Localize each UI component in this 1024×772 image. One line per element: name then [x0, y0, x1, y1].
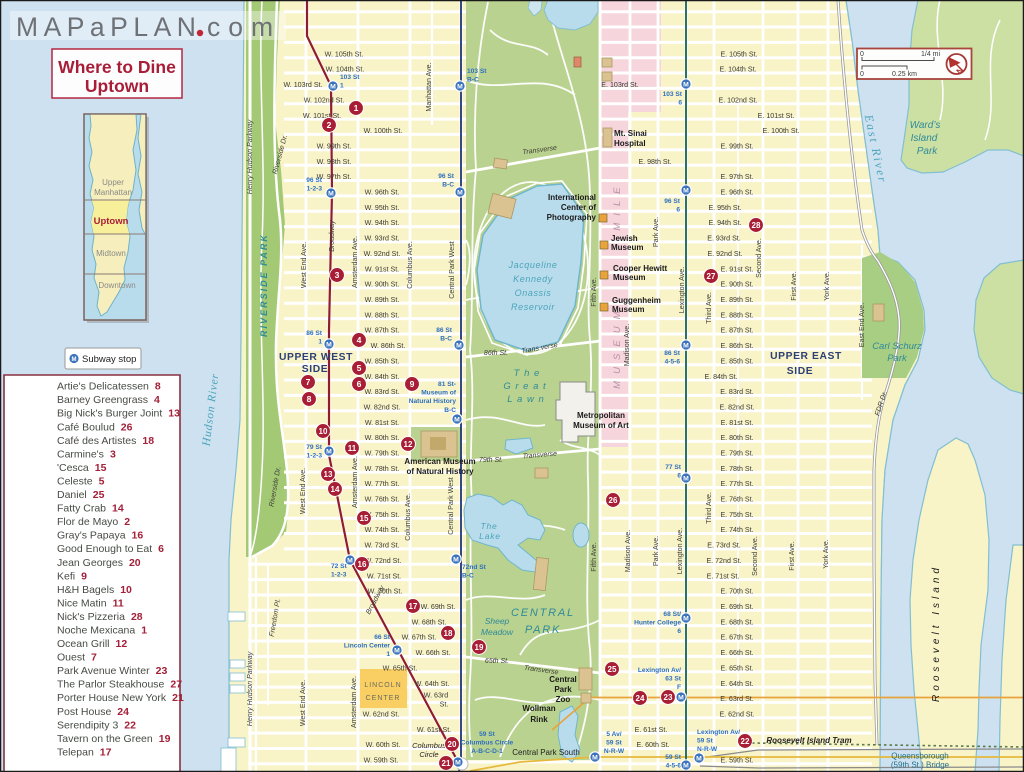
svg-text:Carl Schurz: Carl Schurz [872, 341, 922, 352]
svg-text:SIDE: SIDE [302, 364, 328, 375]
svg-text:6: 6 [678, 100, 682, 107]
svg-text:Lexington Ave.: Lexington Ave. [678, 267, 686, 313]
svg-text:Broadway: Broadway [328, 220, 336, 252]
svg-text:E. 61st St.: E. 61st St. [635, 726, 668, 734]
svg-text:W. 91st St.: W. 91st St. [365, 265, 399, 273]
svg-text:E. 84th St.: E. 84th St. [704, 373, 737, 381]
svg-text:Madison Ave.: Madison Ave. [624, 530, 632, 572]
svg-text:79th St.: 79th St. [479, 457, 503, 464]
svg-text:F: F [677, 684, 681, 691]
svg-text:103 St: 103 St [467, 68, 487, 75]
svg-text:W. 64th St.: W. 64th St. [415, 680, 450, 688]
svg-text:Uptown: Uptown [94, 216, 129, 227]
svg-text:W. 86th St.: W. 86th St. [371, 342, 406, 350]
svg-text:Kennedy: Kennedy [513, 274, 553, 284]
svg-text:M U S E U M: M U S E U M [612, 309, 623, 389]
svg-text:M: M [683, 762, 689, 769]
svg-text:SIDE: SIDE [787, 366, 813, 377]
svg-text:W. 68th St.: W. 68th St. [412, 618, 447, 626]
svg-text:W. 88th St.: W. 88th St. [365, 311, 400, 319]
svg-text:W. 82nd St.: W. 82nd St. [364, 404, 401, 412]
svg-text:Rink: Rink [530, 715, 548, 724]
svg-text:Downtown: Downtown [98, 281, 135, 290]
svg-text:Photography: Photography [547, 213, 597, 222]
svg-text:4-5-6: 4-5-6 [665, 359, 681, 366]
svg-text:Midtown: Midtown [96, 249, 126, 258]
svg-text:E. 69th St.: E. 69th St. [720, 603, 753, 611]
svg-text:W. 62nd St.: W. 62nd St. [363, 710, 400, 718]
svg-text:Porter House New York21: Porter House New York21 [57, 692, 184, 704]
svg-text:86 St: 86 St [306, 330, 323, 337]
svg-text:103 St: 103 St [340, 74, 360, 81]
svg-text:E. 88th St.: E. 88th St. [720, 311, 753, 319]
svg-text:1-2-3: 1-2-3 [307, 453, 323, 460]
svg-text:Third Ave.: Third Ave. [705, 492, 713, 524]
svg-text:M: M [326, 341, 332, 348]
svg-text:11: 11 [348, 444, 357, 453]
svg-text:66 St: 66 St [374, 634, 391, 641]
svg-text:W. 103rd St.: W. 103rd St. [283, 81, 322, 89]
svg-text:E. 92nd St.: E. 92nd St. [707, 250, 742, 258]
svg-text:86th St.: 86th St. [484, 350, 508, 357]
svg-text:E. 60th St.: E. 60th St. [636, 741, 669, 749]
svg-text:Roosevelt Island: Roosevelt Island [931, 564, 942, 702]
svg-text:Central Park West: Central Park West [448, 241, 456, 298]
svg-text:Metropolitan: Metropolitan [577, 411, 625, 420]
svg-text:International: International [548, 193, 596, 202]
svg-text:E. 95th St.: E. 95th St. [708, 204, 741, 212]
svg-text:E. 94th St.: E. 94th St. [708, 219, 741, 227]
svg-text:E. 75th St.: E. 75th St. [720, 511, 753, 519]
svg-text:8: 8 [307, 394, 312, 404]
svg-text:W. 96th St.: W. 96th St. [365, 189, 400, 197]
svg-text:W. 63rd: W. 63rd [424, 692, 448, 700]
svg-text:7: 7 [306, 377, 311, 387]
svg-text:4-5-6: 4-5-6 [666, 763, 682, 770]
svg-text:E. 70th St.: E. 70th St. [720, 588, 753, 596]
svg-text:M: M [326, 448, 332, 455]
svg-text:W. 72nd St.: W. 72nd St. [365, 557, 402, 565]
svg-text:M: M [683, 615, 689, 622]
svg-text:E. 82nd St.: E. 82nd St. [719, 404, 754, 412]
svg-text:Artie's Delicatessen8: Artie's Delicatessen8 [57, 381, 161, 393]
svg-text:Second Ave.: Second Ave. [751, 536, 759, 576]
svg-text:W. 100th St.: W. 100th St. [364, 127, 403, 135]
svg-text:B-C: B-C [444, 407, 456, 414]
svg-text:N-R-W: N-R-W [604, 748, 625, 755]
svg-text:of Natural History: of Natural History [406, 467, 474, 476]
svg-text:T h e: T h e [514, 368, 541, 379]
svg-text:Cooper Hewitt: Cooper Hewitt [613, 264, 668, 273]
svg-text:Museum: Museum [612, 305, 644, 314]
svg-text:Manhattan: Manhattan [94, 188, 132, 197]
svg-text:E. 62nd St.: E. 62nd St. [719, 710, 754, 718]
svg-text:63 St: 63 St [665, 676, 682, 683]
svg-text:MAPaPLAN: MAPaPLAN [16, 12, 201, 42]
svg-text:Guggenheim: Guggenheim [612, 296, 661, 305]
svg-text:1-2-3: 1-2-3 [307, 186, 323, 193]
svg-text:W. 71st St.: W. 71st St. [367, 572, 401, 580]
svg-text:28: 28 [752, 221, 761, 230]
svg-text:E. 93rd St.: E. 93rd St. [707, 235, 741, 243]
svg-text:Lincoln Center: Lincoln Center [344, 643, 391, 650]
svg-text:Park: Park [887, 353, 908, 364]
svg-text:West End Ave.: West End Ave. [300, 242, 308, 288]
svg-text:Hospital: Hospital [614, 139, 646, 148]
svg-text:23: 23 [664, 693, 673, 702]
svg-text:E. 64th St.: E. 64th St. [720, 680, 753, 688]
svg-text:12: 12 [404, 440, 413, 449]
svg-text:Mt. Sinai: Mt. Sinai [614, 129, 647, 138]
svg-text:A-B-C-D-1: A-B-C-D-1 [471, 748, 503, 755]
svg-text:Nice Matin11: Nice Matin11 [57, 597, 124, 609]
svg-text:LINCOLN: LINCOLN [364, 682, 401, 689]
svg-text:E. 97th St.: E. 97th St. [720, 173, 753, 181]
svg-text:18: 18 [444, 629, 453, 638]
svg-text:Lake: Lake [479, 531, 501, 541]
svg-text:com: com [207, 12, 281, 42]
svg-text:Central Park South: Central Park South [512, 748, 580, 757]
svg-text:16: 16 [358, 560, 367, 569]
svg-text:W. 84th St.: W. 84th St. [365, 373, 400, 381]
svg-text:E. 89th St.: E. 89th St. [720, 296, 753, 304]
svg-text:59 St: 59 St [665, 754, 682, 761]
svg-text:96 St: 96 St [438, 173, 455, 180]
svg-text:Lexington Av/: Lexington Av/ [697, 729, 740, 736]
svg-text:E. 59th St.: E. 59th St. [720, 757, 753, 765]
svg-text:M: M [683, 342, 689, 349]
svg-text:10: 10 [319, 427, 328, 436]
svg-text:Jacqueline: Jacqueline [507, 260, 557, 270]
svg-text:M: M [72, 357, 77, 363]
svg-text:E. 91st St.: E. 91st St. [721, 265, 754, 273]
svg-text:0: 0 [860, 71, 864, 78]
svg-text:0.25 km: 0.25 km [892, 71, 917, 78]
svg-text:Good Enough to Eat6: Good Enough to Eat6 [57, 543, 164, 555]
svg-text:E. 77th St.: E. 77th St. [720, 480, 753, 488]
svg-text:Barney Greengrass4: Barney Greengrass4 [57, 394, 160, 406]
svg-text:Henry Hudson Parkway: Henry Hudson Parkway [246, 119, 254, 194]
svg-text:E. 76th St.: E. 76th St. [720, 496, 753, 504]
svg-text:M: M [394, 647, 400, 654]
svg-text:W. 67th St.: W. 67th St. [402, 634, 437, 642]
svg-text:Museum: Museum [613, 273, 645, 282]
svg-text:96 St: 96 St [664, 198, 681, 205]
svg-text:Zoo: Zoo [556, 695, 571, 704]
svg-text:M: M [456, 342, 462, 349]
svg-text:Park Ave.: Park Ave. [652, 536, 660, 566]
svg-text:20: 20 [448, 740, 457, 749]
svg-text:Central: Central [549, 675, 577, 684]
svg-text:St.: St. [440, 701, 449, 709]
svg-text:72nd St: 72nd St [462, 564, 487, 571]
svg-text:E. 102nd St.: E. 102nd St. [718, 96, 757, 104]
svg-text:3: 3 [335, 270, 340, 280]
svg-text:1/4 mi: 1/4 mi [921, 51, 941, 58]
svg-text:Post House24: Post House24 [57, 706, 129, 718]
svg-text:Uptown: Uptown [85, 76, 149, 96]
svg-text:W. 90th St.: W. 90th St. [365, 281, 400, 289]
svg-text:H&H Bagels10: H&H Bagels10 [57, 584, 132, 596]
svg-text:W. 59th St.: W. 59th St. [364, 757, 399, 765]
svg-text:1: 1 [318, 339, 322, 346]
svg-text:L a w n: L a w n [507, 394, 544, 405]
svg-text:9: 9 [410, 379, 415, 389]
svg-text:E. 90th St.: E. 90th St. [720, 281, 753, 289]
svg-text:Jewish: Jewish [611, 234, 638, 243]
svg-text:27: 27 [707, 272, 716, 281]
svg-text:Columbus: Columbus [412, 741, 446, 750]
svg-text:Onassis: Onassis [515, 288, 552, 298]
svg-text:5: 5 [357, 363, 362, 373]
svg-text:E. 87th St.: E. 87th St. [720, 327, 753, 335]
svg-text:1: 1 [354, 103, 359, 113]
svg-text:E. 103rd St.: E. 103rd St. [601, 81, 638, 89]
svg-text:M: M [457, 83, 463, 90]
svg-text:19: 19 [475, 643, 484, 652]
svg-text:W. 66th St.: W. 66th St. [416, 649, 451, 657]
svg-text:W. 65th St.: W. 65th St. [383, 664, 418, 672]
svg-text:W. 85th St.: W. 85th St. [365, 357, 400, 365]
svg-text:86 St: 86 St [664, 350, 681, 357]
svg-text:77 St: 77 St [665, 464, 682, 471]
svg-text:E. 104th St.: E. 104th St. [719, 66, 756, 74]
svg-text:Central Park West: Central Park West [447, 477, 455, 534]
svg-text:E. 83rd St.: E. 83rd St. [720, 388, 754, 396]
svg-text:24: 24 [636, 694, 645, 703]
svg-text:M: M [330, 83, 336, 90]
svg-text:E. 80th St.: E. 80th St. [720, 434, 753, 442]
svg-text:M: M [455, 759, 461, 766]
svg-text:E. 72nd St.: E. 72nd St. [706, 557, 741, 565]
svg-text:Roosevelt Island Tram: Roosevelt Island Tram [766, 736, 851, 745]
svg-text:Columbus Circle: Columbus Circle [461, 740, 514, 747]
svg-text:Park: Park [917, 146, 939, 157]
svg-text:Fifth Ave.: Fifth Ave. [590, 542, 598, 571]
svg-text:W. 78th St.: W. 78th St. [365, 465, 400, 473]
svg-text:Natural History: Natural History [409, 398, 457, 405]
svg-text:Subway stop: Subway stop [82, 354, 136, 365]
svg-text:Third Ave.: Third Ave. [705, 292, 713, 324]
svg-text:Queensborough: Queensborough [891, 752, 948, 761]
svg-text:0: 0 [860, 51, 864, 58]
svg-text:Meadow: Meadow [481, 627, 514, 637]
svg-text:W. 92nd St.: W. 92nd St. [364, 250, 401, 258]
svg-text:W. 98th St.: W. 98th St. [317, 158, 352, 166]
svg-text:W. 89th St.: W. 89th St. [365, 296, 400, 304]
svg-text:N-R-W: N-R-W [697, 746, 718, 753]
svg-text:Hunter College: Hunter College [634, 620, 681, 627]
svg-text:E. 85th St.: E. 85th St. [720, 357, 753, 365]
svg-text:West End Ave.: West End Ave. [299, 680, 307, 726]
svg-text:Where to Dine: Where to Dine [58, 57, 176, 77]
svg-text:First Ave.: First Ave. [788, 541, 796, 570]
svg-text:W. 77th St.: W. 77th St. [365, 480, 400, 488]
svg-text:E. 98th St.: E. 98th St. [638, 158, 671, 166]
svg-text:W. 104th St.: W. 104th St. [326, 66, 365, 74]
svg-text:York Ave.: York Ave. [823, 271, 831, 301]
svg-text:22: 22 [741, 737, 750, 746]
svg-text:6: 6 [677, 628, 681, 635]
svg-text:Jean Georges20: Jean Georges20 [57, 557, 141, 569]
svg-text:Noche Mexicana1: Noche Mexicana1 [57, 625, 147, 637]
svg-text:Manhattan Ave.: Manhattan Ave. [425, 62, 433, 111]
svg-text:Fatty Crab14: Fatty Crab14 [57, 503, 124, 515]
svg-text:Circle: Circle [419, 750, 438, 759]
svg-text:1-2-3: 1-2-3 [331, 572, 347, 579]
svg-text:2: 2 [327, 120, 332, 130]
svg-text:W. 76th St.: W. 76th St. [365, 496, 400, 504]
svg-text:E. 79th St.: E. 79th St. [720, 450, 753, 458]
svg-text:The Parlor Steakhouse27: The Parlor Steakhouse27 [57, 679, 182, 691]
svg-text:Lexington Av/: Lexington Av/ [638, 667, 681, 674]
svg-text:M: M [696, 755, 702, 762]
svg-text:M: M [347, 557, 353, 564]
svg-text:Fifth Ave.: Fifth Ave. [590, 277, 598, 306]
svg-text:The: The [480, 521, 497, 531]
svg-text:East End Ave.: East End Ave. [858, 303, 866, 347]
svg-text:E. 65th St.: E. 65th St. [720, 664, 753, 672]
svg-text:M: M [328, 190, 334, 197]
svg-text:4: 4 [357, 335, 362, 345]
svg-text:Island: Island [911, 133, 938, 144]
svg-text:W. 99th St.: W. 99th St. [317, 143, 352, 151]
svg-text:B-C: B-C [467, 77, 479, 84]
svg-text:17: 17 [409, 602, 418, 611]
svg-text:1: 1 [340, 83, 344, 90]
svg-text:W. 95th St.: W. 95th St. [365, 204, 400, 212]
svg-text:E. 96th St.: E. 96th St. [720, 189, 753, 197]
svg-text:W. 80th St.: W. 80th St. [365, 434, 400, 442]
svg-text:Telepan17: Telepan17 [57, 746, 112, 758]
svg-text:E. 67th St.: E. 67th St. [720, 634, 753, 642]
svg-text:B-C: B-C [462, 573, 474, 580]
svg-text:25: 25 [608, 665, 617, 674]
svg-text:M I L E: M I L E [612, 185, 623, 230]
svg-text:5 Av/: 5 Av/ [606, 731, 621, 738]
svg-text:W. 60th St.: W. 60th St. [366, 741, 401, 749]
svg-text:G r e a t: G r e a t [503, 381, 546, 392]
svg-text:UPPER EAST: UPPER EAST [770, 351, 842, 362]
svg-text:Ouest7: Ouest7 [57, 652, 97, 664]
svg-text:RIVERSIDE PARK: RIVERSIDE PARK [259, 233, 269, 337]
svg-text:1: 1 [386, 651, 390, 658]
svg-text:W. 69th St.: W. 69th St. [421, 603, 456, 611]
svg-text:W. 61st St.: W. 61st St. [417, 726, 451, 734]
svg-text:W. 102nd St.: W. 102nd St. [304, 96, 345, 104]
svg-text:E. 73rd St.: E. 73rd St. [707, 542, 741, 550]
svg-text:Ocean Grill12: Ocean Grill12 [57, 638, 127, 650]
svg-text:W. 94th St.: W. 94th St. [365, 219, 400, 227]
svg-text:W. 87th St.: W. 87th St. [365, 327, 400, 335]
svg-text:W. 105th St.: W. 105th St. [325, 50, 364, 58]
svg-text:Serendipity 322: Serendipity 322 [57, 719, 136, 731]
svg-text:CENTRAL: CENTRAL [511, 607, 575, 619]
svg-text:Reservoir: Reservoir [511, 302, 555, 312]
svg-text:59 St: 59 St [606, 740, 623, 747]
svg-text:65th St.: 65th St. [485, 658, 509, 665]
svg-text:Second Ave.: Second Ave. [755, 238, 763, 278]
svg-text:Lexington Ave.: Lexington Ave. [676, 528, 684, 574]
svg-text:6: 6 [676, 207, 680, 214]
svg-text:PARK: PARK [525, 624, 561, 636]
svg-text:E. 105th St.: E. 105th St. [720, 50, 757, 58]
svg-text:M: M [457, 189, 463, 196]
svg-text:Big Nick's Burger Joint13: Big Nick's Burger Joint13 [57, 408, 180, 420]
svg-text:81 St-: 81 St- [438, 381, 456, 388]
svg-text:26: 26 [609, 496, 618, 505]
svg-text:W. 74th St.: W. 74th St. [365, 526, 400, 534]
svg-text:59 St: 59 St [479, 731, 496, 738]
svg-text:103 St: 103 St [663, 91, 683, 98]
svg-text:Museum of: Museum of [421, 390, 457, 397]
svg-text:E. 63rd St.: E. 63rd St. [720, 695, 754, 703]
svg-text:M: M [683, 187, 689, 194]
svg-text:72 St: 72 St [331, 563, 348, 570]
svg-text:E. 86th St.: E. 86th St. [720, 342, 753, 350]
svg-text:W. 73rd St.: W. 73rd St. [364, 542, 399, 550]
svg-text:Museum of Art: Museum of Art [573, 421, 629, 430]
svg-text:Café Boulud26: Café Boulud26 [57, 421, 133, 433]
svg-text:E. 68th St.: E. 68th St. [720, 618, 753, 626]
svg-text:68 St/: 68 St/ [663, 611, 681, 618]
svg-text:Madison Ave.: Madison Ave. [623, 324, 631, 366]
svg-text:Columbus Ave.: Columbus Ave. [406, 241, 414, 289]
svg-text:B-C: B-C [440, 336, 452, 343]
svg-text:Henry Hudson Parkway: Henry Hudson Parkway [246, 651, 254, 726]
svg-text:W. 93rd St.: W. 93rd St. [364, 235, 399, 243]
svg-text:M: M [454, 416, 460, 423]
svg-text:E. 78th St.: E. 78th St. [720, 465, 753, 473]
svg-text:W. 79th St.: W. 79th St. [365, 450, 400, 458]
svg-text:W. 101st St.: W. 101st St. [303, 112, 341, 120]
svg-text:Museum: Museum [611, 243, 643, 252]
svg-text:E. 101st St.: E. 101st St. [758, 112, 795, 120]
svg-text:W. 81st St.: W. 81st St. [365, 419, 399, 427]
svg-text:E. 100th St.: E. 100th St. [762, 127, 799, 135]
svg-text:West End Ave.: West End Ave. [299, 468, 307, 514]
svg-text:(59th St.) Bridge: (59th St.) Bridge [891, 761, 950, 770]
svg-text:M: M [453, 556, 459, 563]
svg-text:Upper: Upper [102, 178, 124, 187]
svg-text:Amsterdam Ave.: Amsterdam Ave. [351, 456, 359, 508]
svg-text:14: 14 [331, 485, 340, 494]
svg-text:13: 13 [324, 470, 333, 479]
svg-text:'Cesca15: 'Cesca15 [57, 462, 107, 474]
svg-text:M: M [592, 754, 598, 761]
svg-text:Amsterdam Ave.: Amsterdam Ave. [350, 676, 358, 728]
svg-text:Center of: Center of [561, 203, 596, 212]
svg-text:M: M [683, 475, 689, 482]
svg-text:Daniel25: Daniel25 [57, 489, 105, 501]
svg-text:96 St: 96 St [306, 177, 323, 184]
svg-text:21: 21 [442, 759, 451, 768]
svg-text:M: M [678, 694, 684, 701]
svg-text:American Museum: American Museum [404, 457, 475, 466]
svg-text:Amsterdam Ave.: Amsterdam Ave. [351, 236, 359, 288]
svg-text:E. 74th St.: E. 74th St. [720, 526, 753, 534]
svg-text:Ward’s: Ward’s [910, 120, 941, 131]
svg-text:B-C: B-C [442, 182, 454, 189]
svg-text:6: 6 [357, 379, 362, 389]
svg-text:E. 99th St.: E. 99th St. [720, 143, 753, 151]
svg-text:59 St: 59 St [697, 738, 714, 745]
svg-text:CENTER: CENTER [366, 695, 401, 702]
svg-text:Kefi9: Kefi9 [57, 570, 87, 582]
svg-text:Columbus Ave.: Columbus Ave. [404, 493, 412, 541]
svg-text:79 St: 79 St [306, 444, 323, 451]
svg-text:86 St: 86 St [436, 327, 453, 334]
